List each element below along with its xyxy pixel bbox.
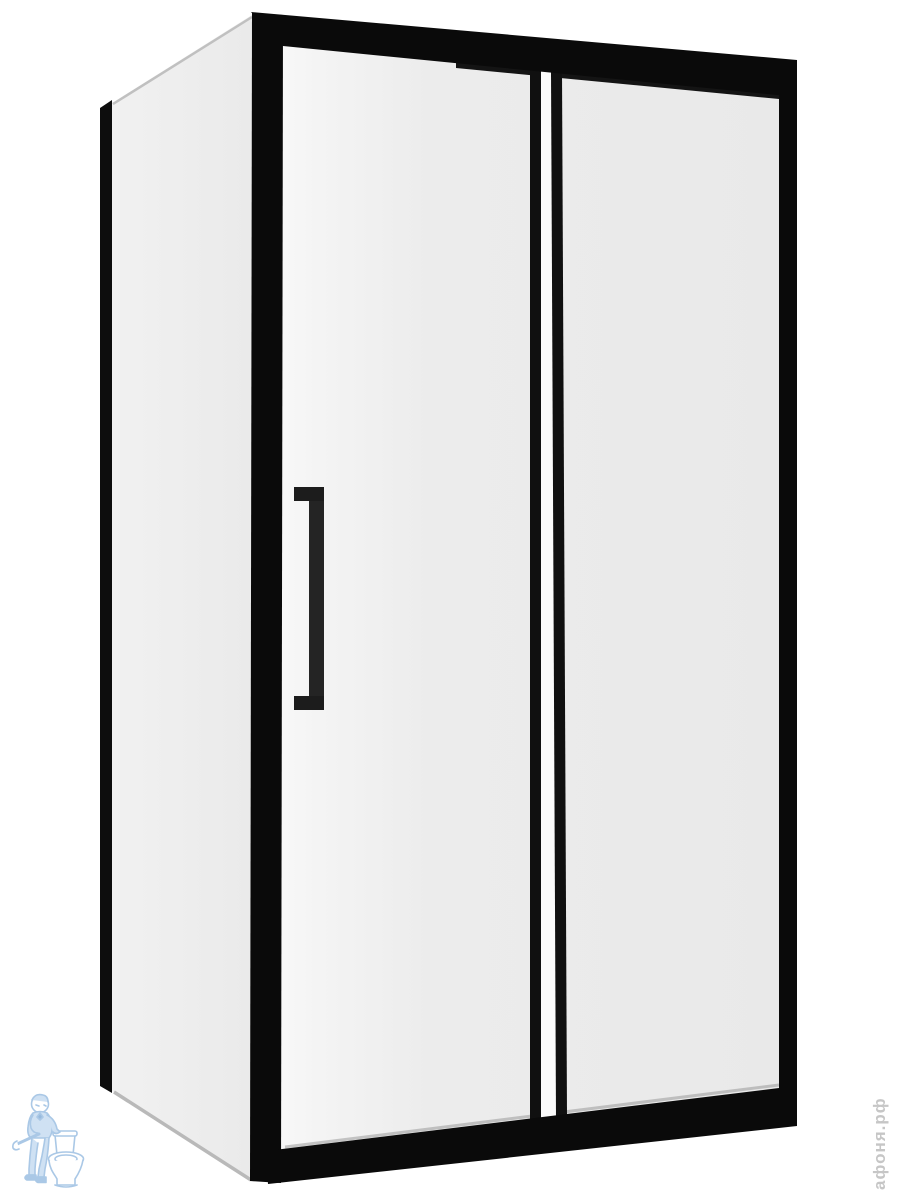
toilet-icon [49, 1131, 84, 1187]
shower-enclosure-image [0, 0, 900, 1200]
front-glass [266, 46, 779, 1152]
product-photo-canvas: афоня.рф [0, 0, 900, 1200]
handle-bottom-stub [294, 696, 324, 710]
frame-right-bar [779, 60, 797, 1126]
frame-left-bar [250, 13, 283, 1183]
side-wall-glass [112, 15, 252, 1181]
wall-profile-left [100, 100, 112, 1093]
plumber-with-toilet-logo [5, 1065, 135, 1200]
handle-bar [309, 487, 324, 710]
store-watermark-text: афоня.рф [868, 1088, 892, 1200]
fixed-panel-stile [530, 68, 541, 1123]
handle-top-stub [294, 487, 324, 501]
